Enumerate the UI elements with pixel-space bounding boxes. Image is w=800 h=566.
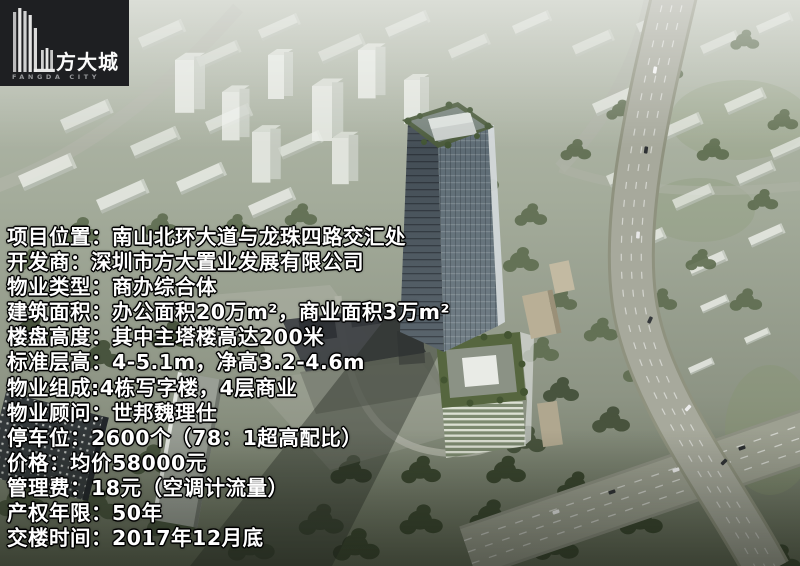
info-line-consultant: 物业顾问：世邦魏理仕	[7, 401, 567, 426]
property-info-list: 项目位置：南山北环大道与龙珠四路交汇处 开发商：深圳市方大置业发展有限公司 物业…	[7, 225, 567, 551]
info-line-tenure: 产权年限：50年	[7, 501, 567, 526]
info-line-composition: 物业组成:4栋写字楼，4层商业	[7, 376, 567, 401]
info-line-parking: 停车位：2600个（78：1超高配比）	[7, 426, 567, 451]
info-line-management-fee: 管理费：18元（空调计流量）	[7, 476, 567, 501]
info-line-property-type: 物业类型：商办综合体	[7, 275, 567, 300]
info-line-price: 价格：均价58000元	[7, 451, 567, 476]
info-line-floor-area: 建筑面积：办公面积20万m²，商业面积3万m²	[7, 300, 567, 325]
info-line-building-height: 楼盘高度：其中主塔楼高达200米	[7, 325, 567, 350]
info-line-developer: 开发商：深圳市方大置业发展有限公司	[7, 250, 567, 275]
logo-subtitle: FANGDA CITY	[12, 73, 124, 81]
promo-image: 方大城 FANGDA CITY 项目位置：南山北环大道与龙珠四路交汇处 开发商：…	[0, 0, 800, 566]
fangda-city-logo: 方大城 FANGDA CITY	[0, 0, 129, 86]
info-line-storey-height: 标准层高：4-5.1m，净高3.2-4.6m	[7, 350, 567, 375]
info-line-location: 项目位置：南山北环大道与龙珠四路交汇处	[7, 225, 567, 250]
info-line-handover-date: 交楼时间：2017年12月底	[7, 526, 567, 551]
building-bars-icon	[10, 4, 60, 74]
logo-title: 方大城	[56, 46, 128, 75]
